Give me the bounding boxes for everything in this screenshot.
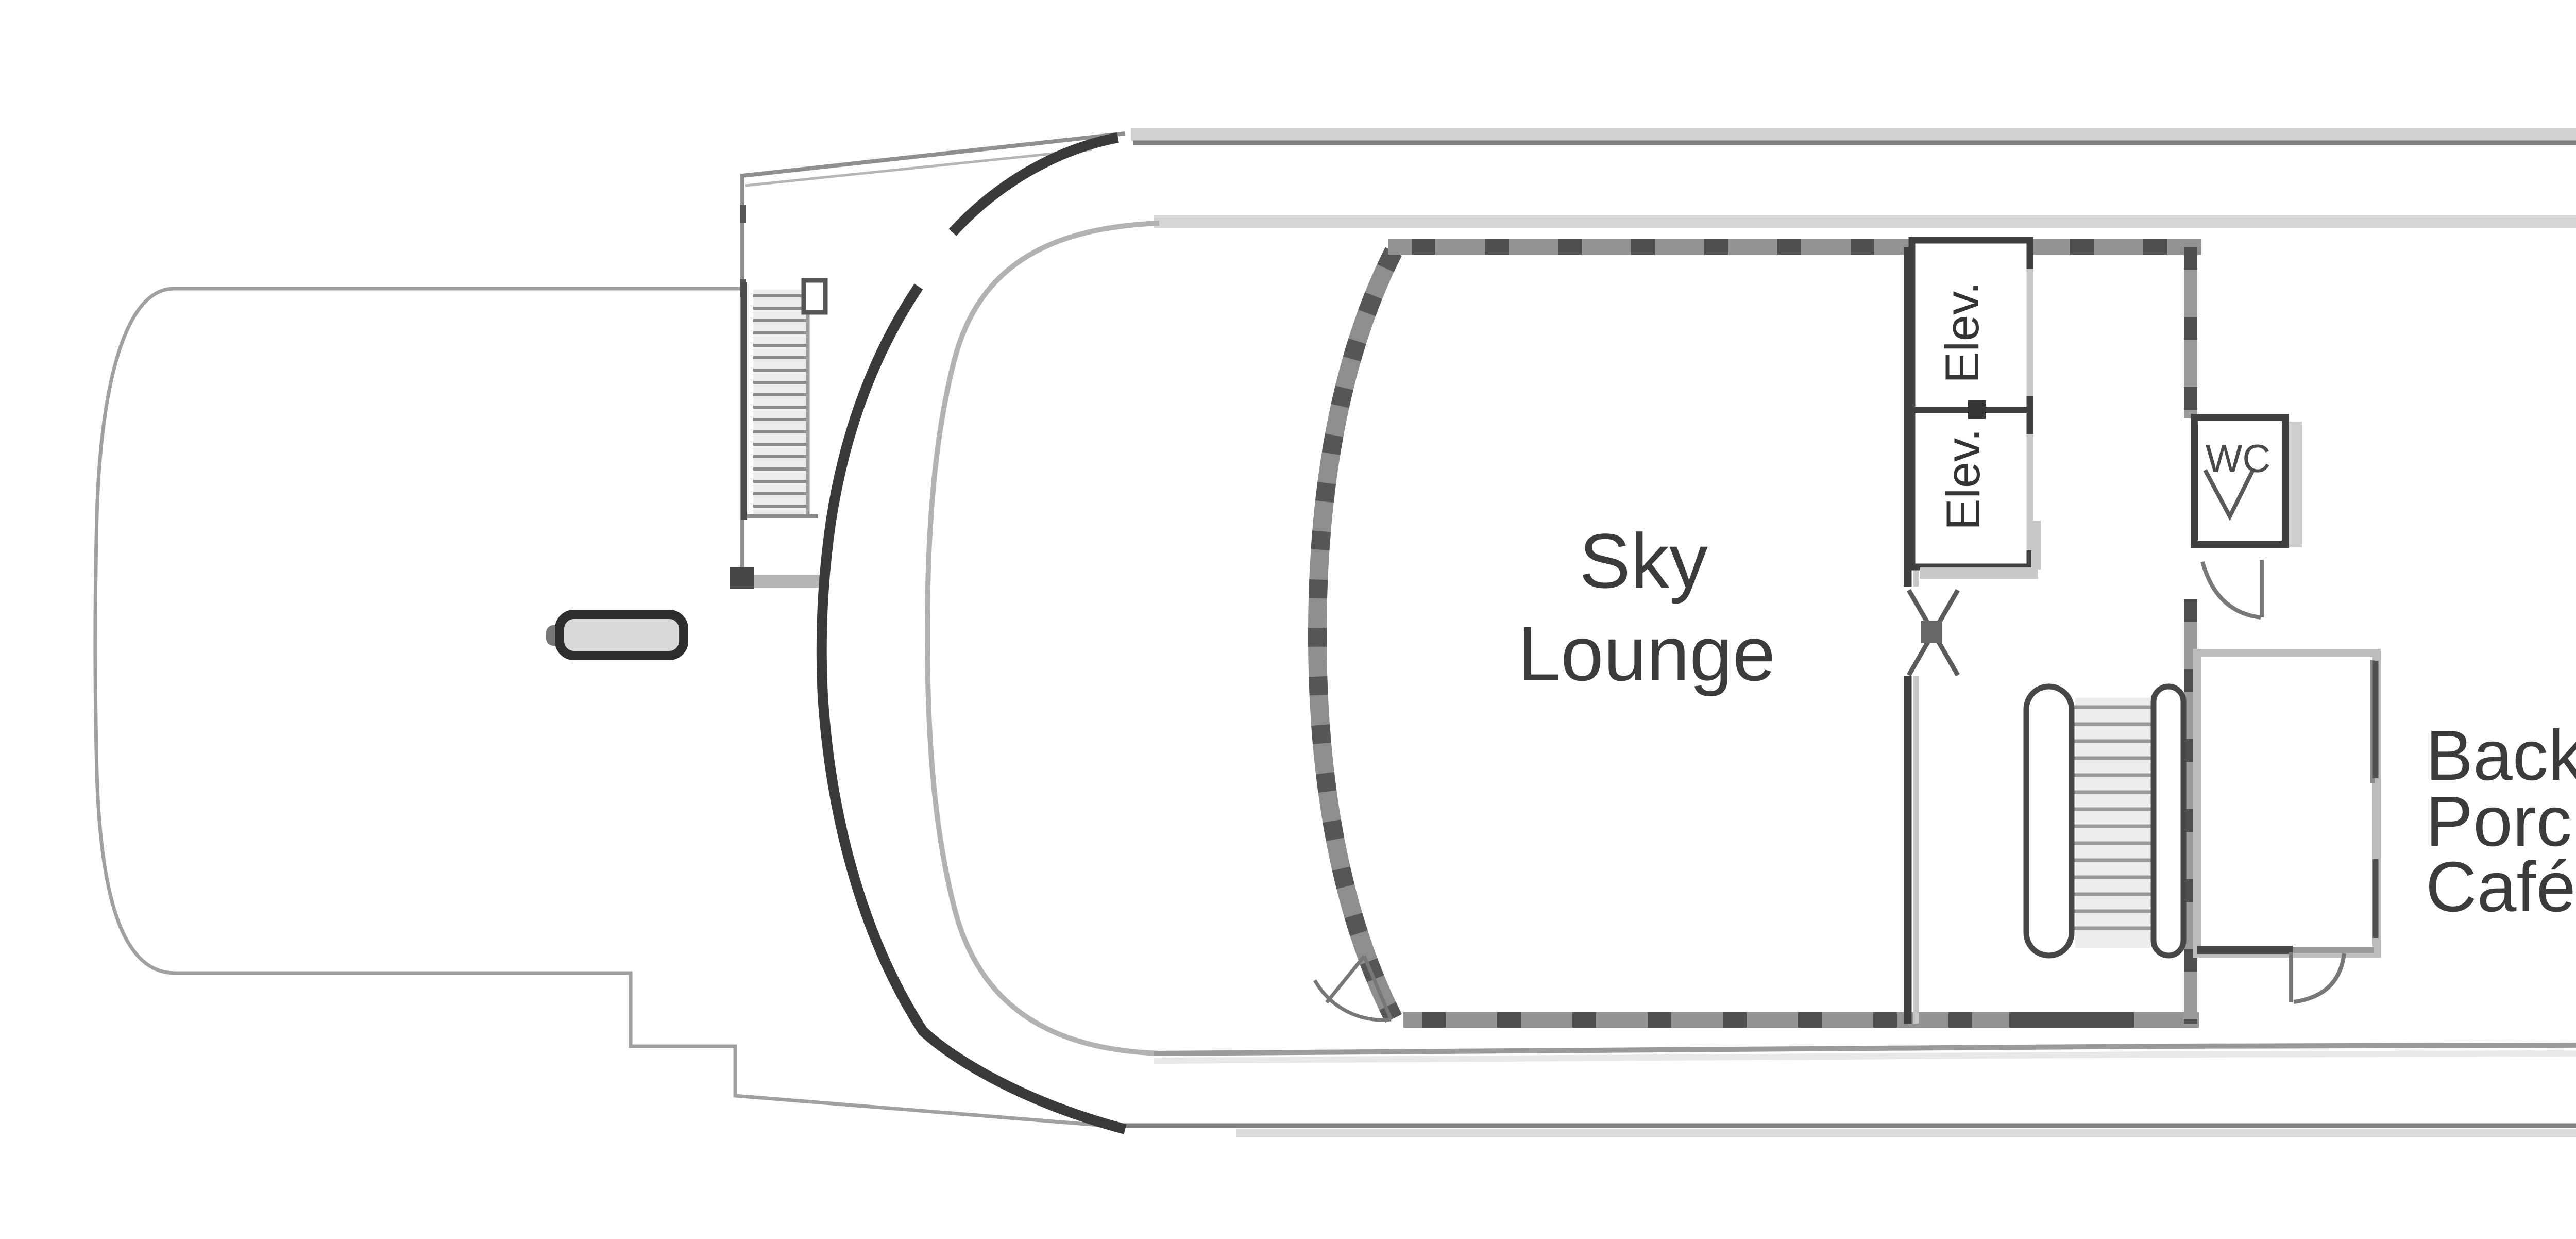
svg-text:Elev.: Elev. — [1936, 281, 1989, 383]
svg-text:Sky: Sky — [1579, 517, 1708, 604]
svg-text:Lounge: Lounge — [1518, 610, 1776, 697]
svg-text:WC: WC — [2206, 437, 2271, 481]
svg-text:Elev.: Elev. — [1937, 428, 1990, 530]
svg-text:Café: Café — [2426, 847, 2576, 927]
